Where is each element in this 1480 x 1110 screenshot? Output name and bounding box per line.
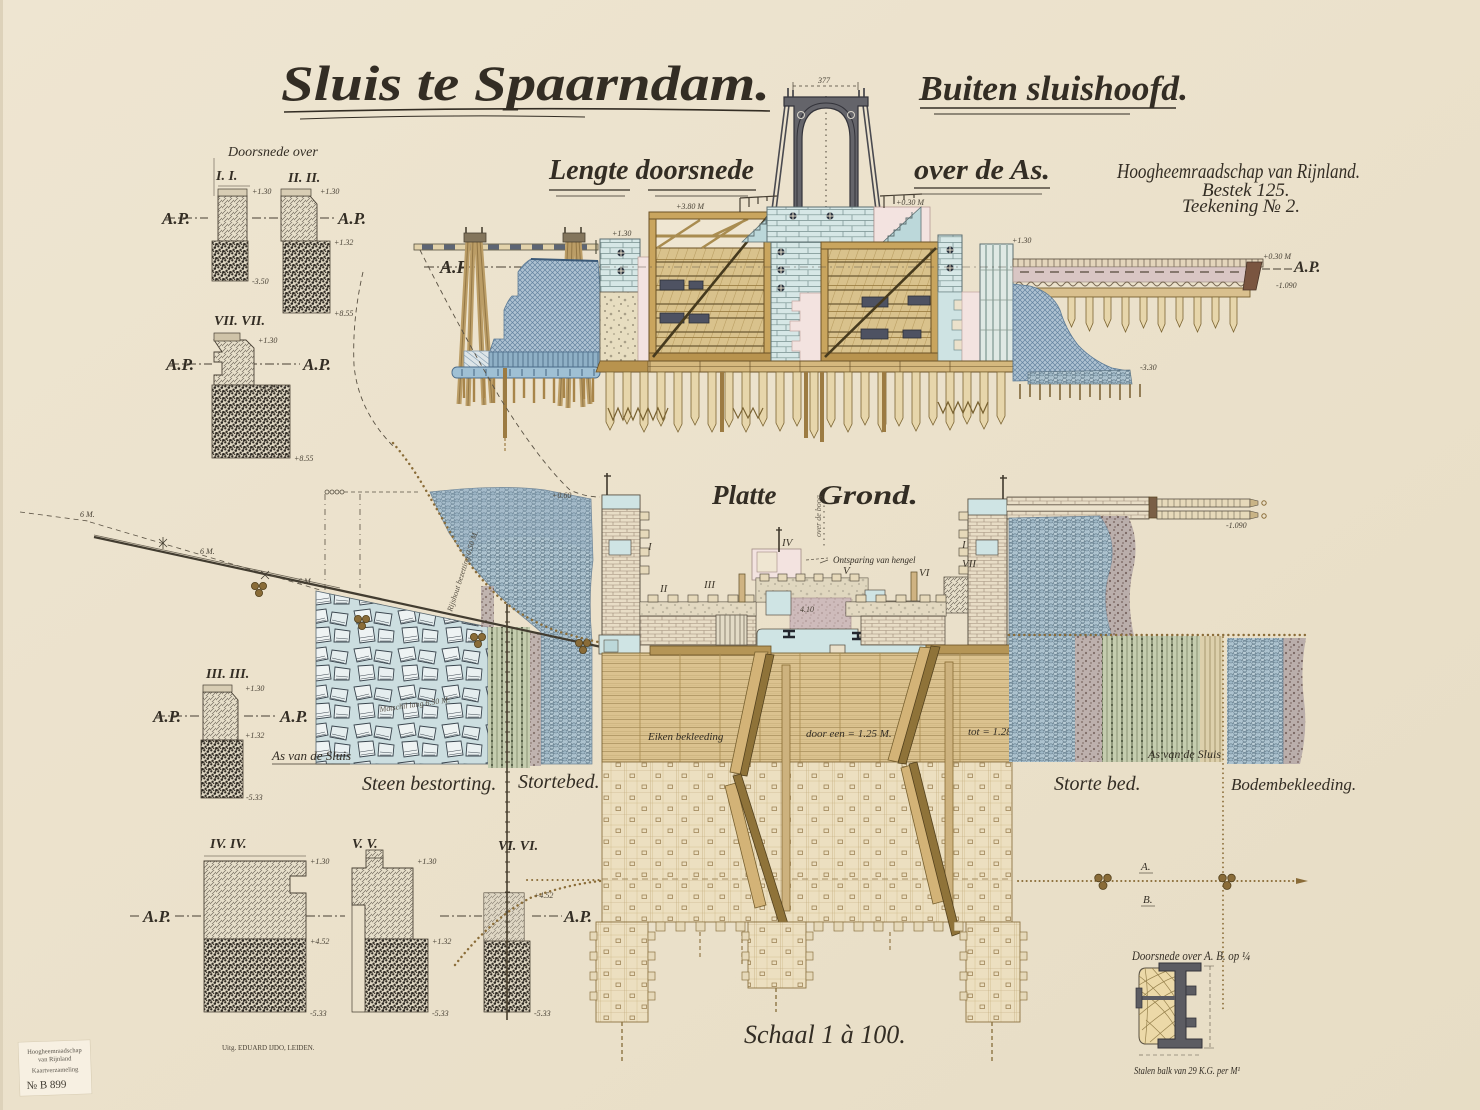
svg-text:+0.60: +0.60 [552,491,571,500]
svg-text:Lengte doorsnede: Lengte doorsnede [548,154,754,186]
svg-text:B.: B. [1143,894,1152,906]
svg-text:over de As.: over de As. [914,154,1050,186]
svg-text:Teekening № 2.: Teekening № 2. [1182,196,1300,217]
svg-text:Grond.: Grond. [818,480,918,510]
svg-text:6 M.: 6 M. [200,547,215,556]
svg-text:377: 377 [817,76,831,85]
svg-text:A.P.: A.P. [165,355,194,374]
svg-text:Doorsnede over: Doorsnede over [227,145,318,160]
svg-text:As van de Sluis: As van de Sluis [1147,747,1221,761]
svg-text:-3.50: -3.50 [252,277,269,286]
svg-text:Eiken bekleeding: Eiken bekleeding [647,731,724,743]
svg-text:+3.80 M: +3.80 M [676,202,705,211]
svg-text:As van de Sluis: As van de Sluis [271,748,351,763]
svg-text:III. III.: III. III. [205,667,249,682]
svg-text:A.P.: A.P. [1293,259,1320,276]
svg-text:Uitg. EDUARD IJDO, LEIDEN.: Uitg. EDUARD IJDO, LEIDEN. [222,1044,315,1052]
svg-text:VI: VI [919,567,931,579]
svg-text:+4.52: +4.52 [310,937,329,946]
svg-text:Stortebed.: Stortebed. [518,771,600,793]
svg-text:Schaal 1 à 100.: Schaal 1 à 100. [744,1020,906,1049]
svg-text:over de boog: over de boog [814,495,823,537]
svg-text:A.P.: A.P. [302,355,331,374]
svg-text:+1.30: +1.30 [417,857,436,866]
svg-text:№ B 899: № B 899 [26,1079,67,1092]
svg-text:A.P.: A.P. [563,907,592,926]
svg-text:+0.30 M: +0.30 M [896,198,925,207]
svg-text:+8.55: +8.55 [294,454,313,463]
svg-text:Storte bed.: Storte bed. [1054,773,1141,795]
svg-text:-1.090: -1.090 [1276,281,1297,290]
svg-text:6 M.: 6 M. [298,577,313,586]
svg-text:door een = 1.25 M.: door een = 1.25 M. [806,728,892,740]
svg-text:A.P.: A.P. [152,707,181,726]
svg-text:A.P.: A.P. [161,209,190,228]
svg-text:Sluis te Spaarndam.: Sluis te Spaarndam. [281,55,770,111]
svg-text:III: III [703,579,716,591]
svg-text:-5.33: -5.33 [310,1009,327,1018]
svg-text:+1.32: +1.32 [245,731,264,740]
svg-text:+1.30: +1.30 [612,229,631,238]
svg-text:I. I.: I. I. [215,169,237,184]
svg-text:4.10: 4.10 [800,605,814,614]
svg-text:VII: VII [962,558,977,570]
svg-text:Steen bestorting.: Steen bestorting. [362,773,496,795]
svg-text:+0.30 M: +0.30 M [1263,252,1292,261]
svg-text:Doorsnede over A. B. op ¼: Doorsnede over A. B. op ¼ [1131,948,1250,963]
svg-text:A.P.: A.P. [337,209,366,228]
svg-text:+1.30: +1.30 [1012,236,1031,245]
svg-text:+1.32: +1.32 [334,238,353,247]
svg-text:-1.090: -1.090 [1226,521,1247,530]
svg-text:A.P.: A.P. [142,907,171,926]
svg-text:-5.33: -5.33 [246,793,263,802]
svg-text:IV. IV.: IV. IV. [209,837,246,852]
svg-text:+1.30: +1.30 [245,684,264,693]
svg-text:van Rijnland: van Rijnland [38,1055,72,1063]
svg-text:+1.32: +1.32 [258,383,277,392]
svg-text:+1.30: +1.30 [310,857,329,866]
svg-text:Ontsparing van hengel: Ontsparing van hengel [833,555,916,565]
svg-text:II. II.: II. II. [287,171,320,186]
svg-text:+1.30: +1.30 [252,187,271,196]
svg-text:Platte: Platte [711,480,776,510]
svg-text:+1.32: +1.32 [432,937,451,946]
svg-text:IV: IV [781,537,794,549]
svg-text:II: II [659,583,669,595]
svg-text:VII. VII.: VII. VII. [214,314,265,329]
svg-text:-3.30: -3.30 [1140,363,1157,372]
svg-text:+1.30: +1.30 [258,336,277,345]
svg-text:+8.55: +8.55 [334,309,353,318]
svg-text:6 M.: 6 M. [80,510,95,519]
svg-text:A.P.: A.P. [279,707,308,726]
svg-text:Stalen balk van 29 K.G. per M¹: Stalen balk van 29 K.G. per M¹ [1134,1065,1240,1077]
svg-text:Buiten sluishoofd.: Buiten sluishoofd. [918,69,1188,108]
svg-text:A.: A. [1140,861,1150,873]
svg-text:VI. VI.: VI. VI. [498,839,538,854]
svg-text:-5.33: -5.33 [534,1009,551,1018]
svg-text:Bodembekleeding.: Bodembekleeding. [1231,775,1356,794]
svg-text:-5.33: -5.33 [432,1009,449,1018]
svg-text:+1.30: +1.30 [320,187,339,196]
